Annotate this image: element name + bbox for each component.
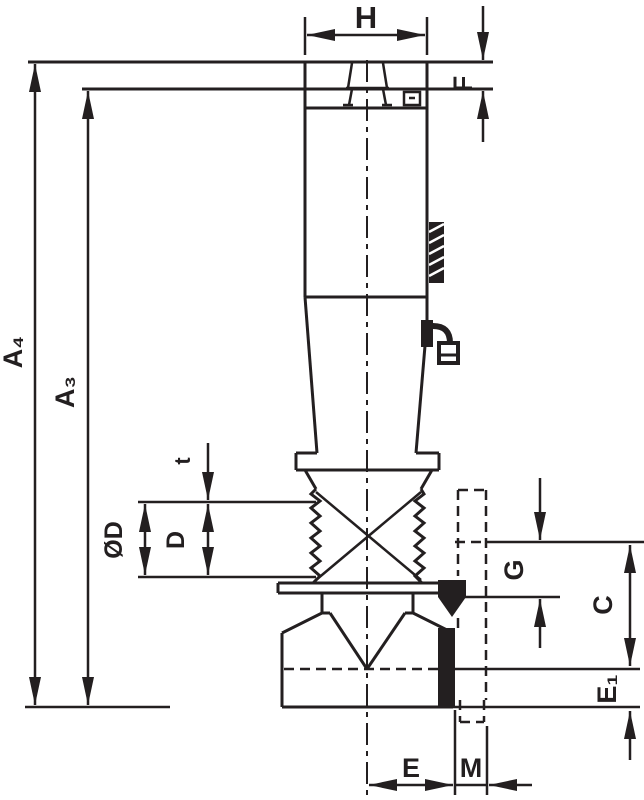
part-outline xyxy=(28,62,493,707)
thread-relief-detail xyxy=(400,92,424,108)
side-block xyxy=(438,580,466,706)
dim-label-t: t xyxy=(170,457,195,465)
drawing-canvas: H F A₄ A₃ t ØD D G C E₁ E M xyxy=(0,0,644,800)
dim-label-od: ØD xyxy=(100,521,128,559)
knurl-mark xyxy=(429,222,444,283)
dim-label-m: M xyxy=(460,753,483,783)
dim-label-h: H xyxy=(355,0,377,35)
dim-label-c: C xyxy=(588,595,618,615)
dim-label-a3: A₃ xyxy=(50,376,80,408)
dim-label-g: G xyxy=(499,559,529,580)
dim-label-d: D xyxy=(162,531,190,549)
dim-label-f: F xyxy=(448,76,478,93)
taper-note-symbol xyxy=(421,320,458,363)
dim-label-e1: E₁ xyxy=(592,674,622,703)
technical-drawing: H F A₄ A₃ t ØD D G C E₁ E M xyxy=(0,0,644,800)
extension-lines xyxy=(25,17,644,795)
dim-label-a4: A₄ xyxy=(0,336,28,368)
dim-label-e: E xyxy=(402,753,420,783)
